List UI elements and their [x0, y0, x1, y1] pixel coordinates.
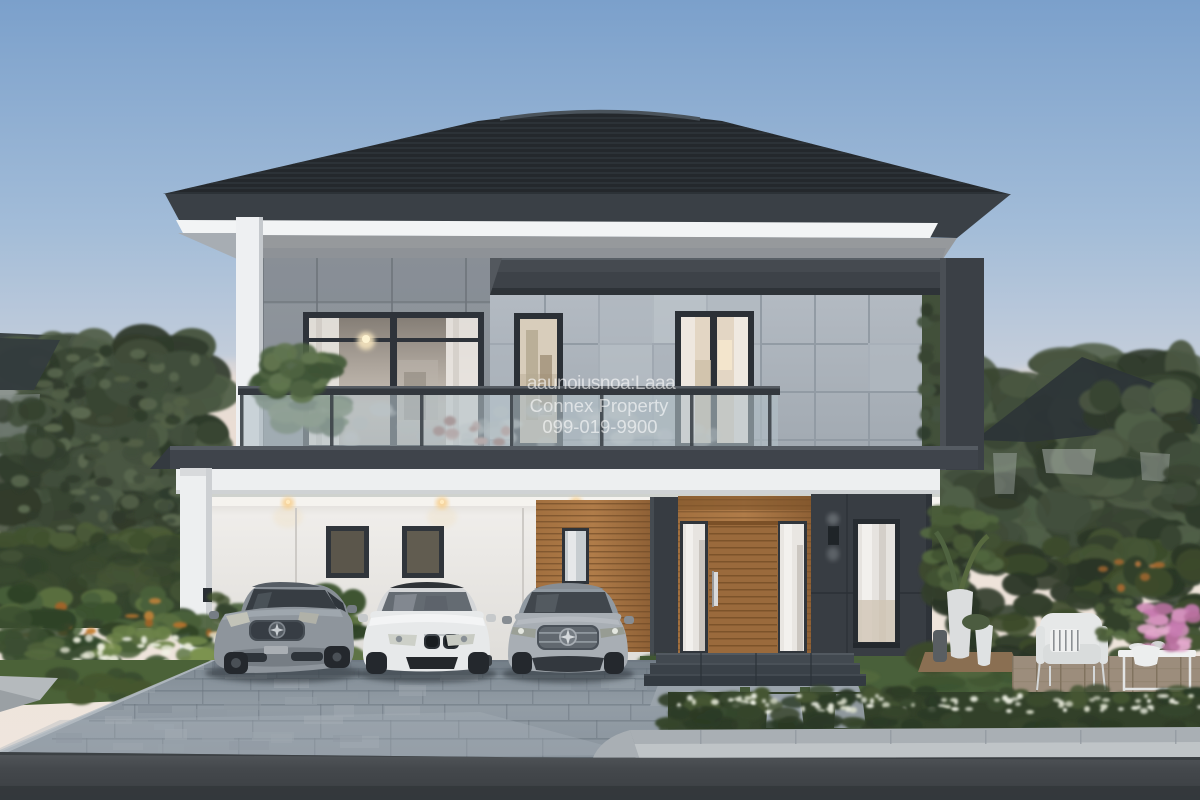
- svg-text:aaunoiusnoa:Laaa: aaunoiusnoa:Laaa: [527, 373, 676, 394]
- svg-text:099-019-9900: 099-019-9900: [542, 416, 657, 437]
- svg-text:Connex Property: Connex Property: [530, 395, 670, 416]
